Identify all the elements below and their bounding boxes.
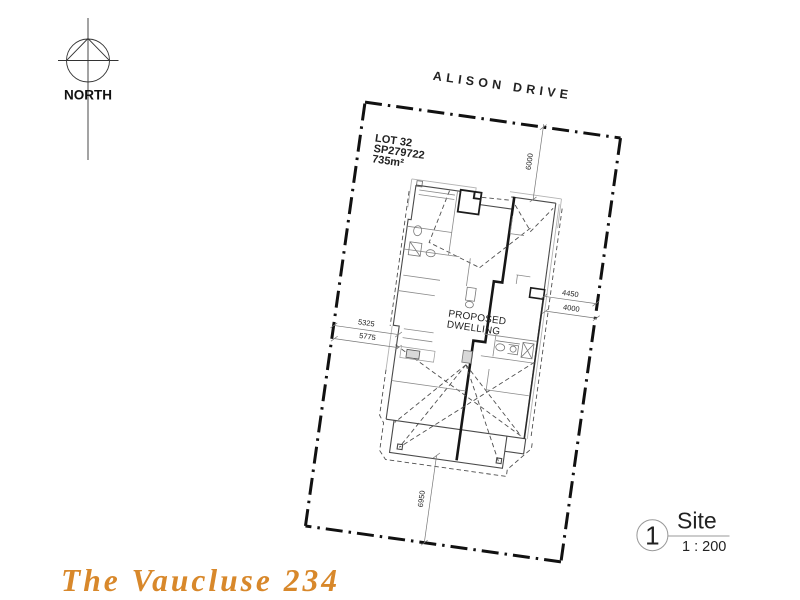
svg-text:NORTH: NORTH [64, 87, 112, 102]
svg-text:The Vaucluse 234: The Vaucluse 234 [61, 563, 340, 598]
svg-text:Site: Site [677, 508, 717, 534]
svg-text:1: 1 [645, 521, 659, 551]
svg-text:1 : 200: 1 : 200 [682, 539, 726, 555]
